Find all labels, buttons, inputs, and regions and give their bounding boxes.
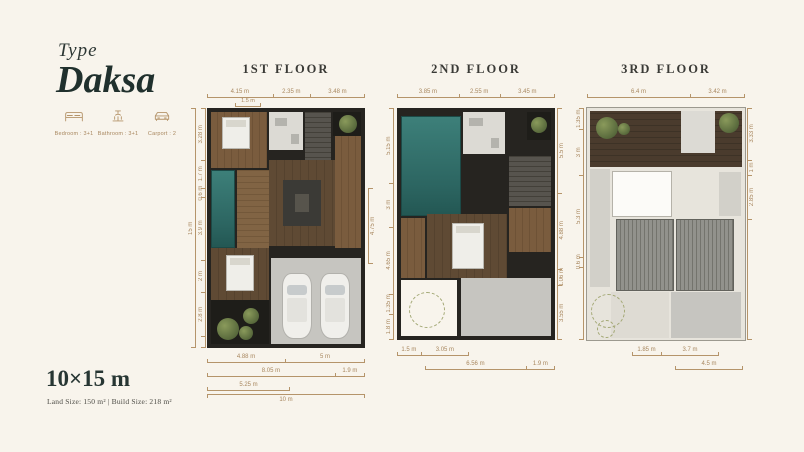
dim-segment: 2 m [197,260,206,292]
dim-segment: 4.5 m [675,358,743,370]
car-roof [287,298,307,322]
dim-label: 4.65 m [385,227,393,295]
carport [271,258,361,344]
bed [453,224,483,268]
floor-2-plan [397,108,555,340]
swimming-pool [211,170,235,248]
feature-bathroom: Bathroom : 3+1 [96,108,140,137]
master-bedroom [211,112,267,168]
plant [217,318,239,340]
table [295,194,309,212]
floorplan-brochure: Type Daksa Bedroom : 3+1 Bathroom : 3+1 … [0,0,804,452]
dim-segment: 3.05 m [421,344,469,356]
dim-label: 3.55 m [558,285,566,340]
plant [531,117,547,133]
dim-label: 0.6 m [575,257,583,266]
dim-segment: 1.35 m [385,294,394,314]
plant [339,115,357,133]
car-windshield [325,285,345,295]
side-walkway [719,172,741,216]
dim-label: 6.56 m [425,361,526,367]
dim-label: 2.85 m [748,175,756,219]
dim-segment: 8.05 m [207,365,335,377]
dim-segment: 1.5 m [235,98,261,107]
planter-corner [333,112,361,136]
dim-segment: 5.25 m [207,379,290,391]
bath-icon [108,108,128,128]
dim-segment: 0.6 m [197,188,206,198]
roof-room [681,111,715,153]
dim-label: 1.7 m [197,160,205,187]
dim-label: 10 m [207,397,365,403]
car-windshield [287,285,307,295]
dim-label: 0.6 m [197,188,205,198]
dim-label: 1.35 m [575,108,583,129]
pool-deck [237,170,269,248]
floor-2-section: 2ND FLOOR 3.85 m 2.55 m 3.45 m 5.15 m 3 … [376,56,586,408]
dim-label: 3.48 m [310,89,365,95]
bathroom [269,112,303,150]
dim-segment [747,219,756,340]
dim-label: 3.45 m [500,89,555,95]
floor-1-top-dims: 4.15 m 2.35 m 3.48 m [207,86,365,98]
garden [211,300,269,344]
pool-void [401,116,461,216]
dim-segment: 6.56 m [425,358,526,370]
floor-1-bottom-dims-row3: 5.25 m [207,379,290,391]
dim-label: 8.05 m [207,368,335,374]
dim-segment: 4.88 m [207,351,285,363]
dim-label: 5.5 m [558,108,566,193]
floor-2-title: 2ND FLOOR [397,62,555,77]
dim-segment: 15 m [187,108,196,348]
dim-label: 1.5 m [235,98,261,104]
dim-label: 1.9 m [335,368,365,374]
dim-segment: 5.15 m [385,108,394,183]
floor-3-plan [587,108,745,340]
dim-segment: 1.9 m [526,358,555,370]
dim-segment: 3.85 m [397,86,459,98]
dim-segment: 1.5 m [397,344,421,356]
guest-bedroom [211,248,269,300]
dim-segment: 0.6 m [575,257,584,266]
bed-pillow [226,120,246,127]
floor-1-section: 1ST FLOOR 4.15 m 2.35 m 3.48 m 1.5 m 15 … [185,56,395,408]
dim-segment: 3.45 m [500,86,555,98]
dim-label: 3.7 m [661,347,719,353]
dim-label: 4.15 m [207,89,273,95]
dim-segment: 3.55 m [557,285,566,340]
dim-label: 5.3 m [575,175,583,257]
dim-segment: 1.06 m [557,269,566,285]
floor-1-plan [207,108,365,348]
dim-segment: 1.7 m [197,160,206,187]
bed [223,118,249,148]
dim-label: 6.4 m [587,89,690,95]
dim-label: 4.88 m [558,193,566,269]
dim-segment: 1.8 m [385,314,394,340]
dim-segment: 5.3 m [575,175,584,257]
type-name: Daksa [56,58,155,102]
floor-3-bottom-dims-row2: 4.5 m [675,358,743,370]
dim-segment: 1.9 m [335,365,365,377]
dim-segment: 3.42 m [690,86,745,98]
dim-label: 2.55 m [459,89,500,95]
floor-3-section: 3RD FLOOR 6.4 m 3.42 m 1.35 m 3 m 5.3 m … [566,56,776,408]
plant-sketch [409,292,445,328]
dim-segment: 2.35 m [273,86,310,98]
floor-1-outer-left-dim: 15 m [187,108,196,348]
sink [469,118,483,126]
dim-segment: 4.88 m [557,193,566,269]
floor-1-bottom-dims-row1: 4.88 m 5 m [207,351,365,363]
dim-label: 3.85 m [397,89,459,95]
dim-segment [575,267,584,340]
dim-label: 5.15 m [385,108,393,183]
dim-label: 1.35 m [385,294,393,314]
open-cutout [401,280,457,336]
dim-label: 3.33 m [748,108,756,160]
dim-segment: 2.8 m [197,292,206,337]
dim-label: 15 m [187,108,195,348]
dim-label: 1.06 m [558,269,566,285]
bathroom [463,112,505,154]
floor-3-left-dims: 1.35 m 3 m 5.3 m 0.6 m [575,108,584,340]
dim-label: 3.9 m [197,197,205,259]
plant [719,113,739,133]
dim-segment [197,336,206,348]
dim-label: 2 m [197,260,205,292]
stairs [509,156,551,206]
car-icon [152,108,172,128]
floor-3-bottom-dims-row1: 1.85 m 3.7 m [632,344,719,356]
dim-label: 5.25 m [207,382,290,388]
roof-terrace [671,292,741,338]
plant [239,326,253,340]
dining-strip [335,136,361,248]
dim-label: 3 m [575,129,583,175]
dim-label: 1 m [748,160,756,175]
floor-1-overall-width: 10 m [207,394,365,405]
floor-2-bottom-dims-row2: 6.56 m 1.9 m [425,358,555,370]
wardrobe-area [509,208,551,252]
planter-corner [527,112,551,140]
dim-segment: 1 m [747,160,756,175]
bed-pillow [456,226,480,233]
floor-2-left-dims: 5.15 m 3 m 4.65 m 1.35 m 1.8 m [385,108,394,340]
bed-icon [64,108,84,128]
dim-label: 4.88 m [207,354,285,360]
lot-dimensions: 10×15 m [46,366,130,392]
dim-segment: 3.7 m [661,344,719,356]
dim-segment: 5.5 m [557,108,566,193]
dim-segment: 1.85 m [632,344,661,356]
car [321,274,349,338]
dim-label: 2.35 m [273,89,310,95]
floor-1-top-subdim: 1.5 m [235,98,261,107]
feature-bedroom: Bedroom : 3+1 [52,108,96,137]
terrace [461,278,551,336]
sink [275,118,287,126]
dim-segment: 3.33 m [747,108,756,160]
floor-1-left-dims: 3.28 m 1.7 m 0.6 m 3.9 m 2 m 2.8 m [197,108,206,348]
living-room [269,160,335,246]
dim-label: 2.8 m [197,292,205,337]
pergola-panel [677,220,733,290]
dim-label: 1.85 m [632,347,661,353]
plant [596,117,618,139]
dim-segment: 10 m [207,394,365,405]
dim-segment: 5 m [285,351,365,363]
dim-segment: 2.85 m [747,175,756,219]
floor-2-right-dims: 5.5 m 4.88 m 1.06 m 3.55 m [557,108,566,340]
dim-label: 1.8 m [385,314,393,340]
floor-3-top-dims: 6.4 m 3.42 m [587,86,745,98]
land-build-size: Land Size: 150 m² | Build Size: 218 m² [47,397,172,406]
floor-2-top-dims: 3.85 m 2.55 m 3.45 m [397,86,555,98]
toilet [291,134,299,144]
car-roof [325,298,345,322]
plant-sketch [597,320,615,338]
dim-label: 3 m [385,183,393,227]
feature-bedroom-label: Bedroom : 3+1 [55,131,94,137]
feature-bathroom-label: Bathroom : 3+1 [98,131,139,137]
dim-segment: 4.15 m [207,86,273,98]
floor-1-bottom-dims-row2: 8.05 m 1.9 m [207,365,365,377]
floor-2-bottom-dims-row1: 1.5 m 3.05 m [397,344,469,356]
side-walkway [590,169,610,287]
dim-label: 3.05 m [421,347,469,353]
dim-segment: 3 m [575,129,584,175]
dim-segment: 3.28 m [197,108,206,160]
bed [227,256,253,290]
skylight-void [613,172,671,216]
floor-3-title: 3RD FLOOR [587,62,745,77]
dim-segment: 3 m [385,183,394,227]
dim-segment: 2.55 m [459,86,500,98]
floor-1-title: 1ST FLOOR [207,62,365,77]
hall-strip [401,218,425,278]
bed-pillow [230,258,250,265]
dim-label: 3.42 m [690,89,745,95]
plant [618,123,630,135]
pergola-panel [617,220,673,290]
dim-label: 3.28 m [197,108,205,160]
plant [243,308,259,324]
dim-segment: 6.4 m [587,86,690,98]
dim-segment: 4.65 m [385,227,394,295]
feature-carport-label: Carport : 2 [148,131,176,137]
dim-segment: 1.35 m [575,108,584,129]
dim-label: 4.5 m [675,361,743,367]
feature-carport: Carport : 2 [140,108,184,137]
toilet [491,138,499,148]
bedroom [427,214,507,278]
dim-segment: 3.48 m [310,86,365,98]
floor-3-right-dims: 3.33 m 1 m 2.85 m [747,108,756,340]
feature-list: Bedroom : 3+1 Bathroom : 3+1 Carport : 2 [52,108,184,137]
dim-segment: 3.9 m [197,197,206,259]
stairs [305,112,331,162]
dim-label: 5 m [285,354,365,360]
car [283,274,311,338]
dim-label: 1.5 m [397,347,421,353]
dim-label: 1.9 m [526,361,555,367]
